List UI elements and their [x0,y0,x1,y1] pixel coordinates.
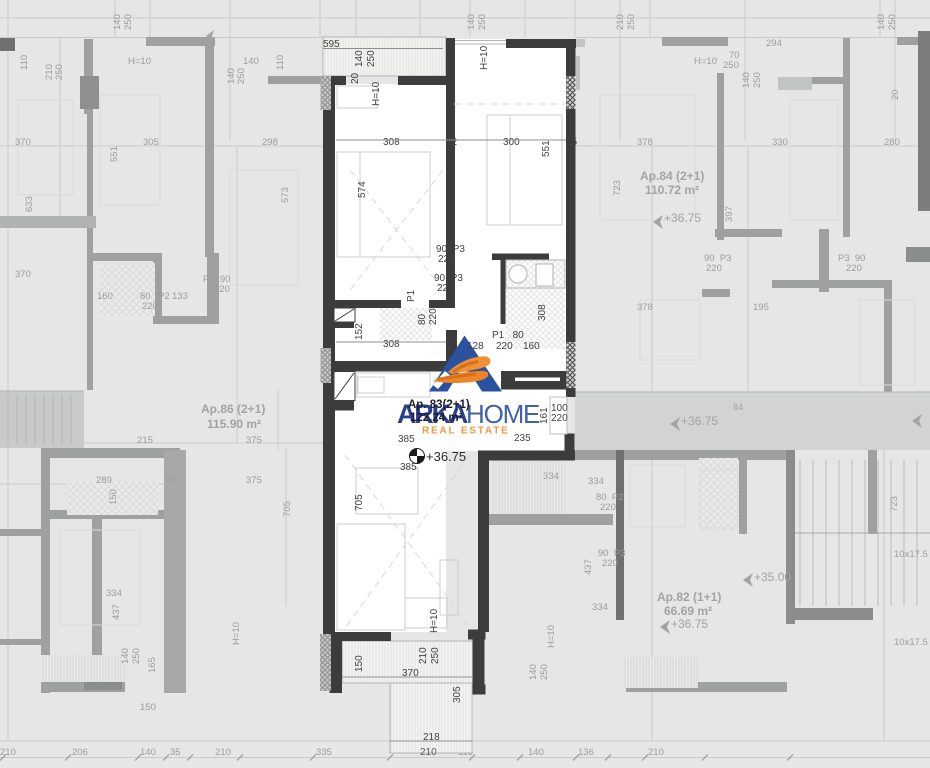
svg-text:220: 220 [602,558,618,569]
svg-text:REAL ESTATE: REAL ESTATE [422,426,510,437]
svg-text:210: 210 [615,14,626,30]
svg-text:250: 250 [887,14,898,30]
svg-text:220: 220 [428,308,439,325]
svg-text:220: 220 [551,413,568,424]
svg-text:334: 334 [106,588,122,599]
svg-text:385: 385 [398,434,415,445]
svg-text:140: 140 [140,747,156,758]
svg-text:551: 551 [109,146,120,162]
svg-text:195: 195 [753,302,769,313]
svg-text:165: 165 [147,657,158,673]
svg-text:140: 140 [528,747,544,758]
svg-text:370: 370 [15,269,31,280]
svg-text:12: 12 [446,137,458,148]
svg-text:378: 378 [637,302,653,313]
svg-text:375: 375 [246,475,262,486]
svg-text:140: 140 [243,56,259,67]
svg-text:H=10: H=10 [128,56,151,67]
svg-text:84: 84 [733,402,743,412]
svg-text:Ap.82 (1+1): Ap.82 (1+1) [657,590,721,604]
svg-text:H=10: H=10 [371,81,382,106]
svg-text:H=10: H=10 [479,45,490,70]
svg-text:160: 160 [523,341,540,352]
svg-text:128: 128 [467,341,484,352]
svg-text:437: 437 [111,604,122,620]
svg-text:397: 397 [724,206,735,222]
svg-text:250: 250 [236,68,247,84]
svg-text:+36.75: +36.75 [664,211,701,225]
svg-text:210: 210 [418,647,429,664]
svg-text:140: 140 [466,14,477,30]
svg-text:551: 551 [541,140,552,157]
svg-text:250: 250 [752,72,763,88]
svg-text:334: 334 [592,602,608,613]
svg-text:25: 25 [566,137,578,148]
svg-text:375: 375 [246,435,262,446]
svg-text:Ap.84 (2+1): Ap.84 (2+1) [640,169,704,183]
svg-text:308: 308 [383,339,400,350]
svg-text:P1: P1 [406,289,417,302]
svg-text:+36.75: +36.75 [671,617,708,631]
svg-text:70: 70 [165,475,176,486]
svg-text:HOME: HOME [466,399,540,429]
svg-text:220: 220 [142,301,158,312]
svg-text:35: 35 [170,747,181,758]
svg-text:20: 20 [890,89,901,100]
svg-text:573: 573 [280,187,291,203]
svg-text:161: 161 [539,407,550,424]
svg-text:+36.75: +36.75 [426,449,466,464]
svg-text:250: 250 [54,64,65,80]
svg-text:140: 140 [741,72,752,88]
svg-text:723: 723 [612,180,623,196]
svg-text:110: 110 [19,55,30,70]
svg-text:250: 250 [123,14,134,30]
svg-text:H=10: H=10 [546,625,557,648]
svg-text:122.24 m²: 122.24 m² [410,412,463,424]
svg-text:437: 437 [583,559,594,575]
svg-text:140: 140 [528,664,539,680]
svg-text:280: 280 [884,137,900,148]
svg-text:H=10: H=10 [694,56,717,67]
svg-text:250: 250 [430,647,441,664]
svg-text:Ap.86 (2+1): Ap.86 (2+1) [201,402,265,416]
svg-text:250: 250 [131,648,142,664]
svg-text:152: 152 [354,323,365,340]
svg-text:220: 220 [214,284,230,295]
svg-text:110.72 m²: 110.72 m² [645,183,699,197]
svg-text:20: 20 [350,72,361,84]
svg-text:206: 206 [72,747,88,758]
svg-text:250: 250 [723,60,739,71]
svg-text:378: 378 [637,137,653,148]
svg-text:705: 705 [282,501,293,517]
svg-text:150: 150 [354,655,365,672]
svg-text:308: 308 [383,137,400,148]
svg-text:335: 335 [316,747,332,758]
svg-text:80: 80 [417,313,428,325]
svg-text:150: 150 [108,489,119,505]
svg-text:140: 140 [112,14,123,30]
svg-text:289: 289 [96,475,112,486]
svg-text:220: 220 [438,254,455,265]
svg-text:210: 210 [215,747,231,758]
svg-text:H=10: H=10 [231,622,242,645]
svg-text:574: 574 [357,181,368,198]
svg-text:334: 334 [588,476,604,487]
svg-text:133: 133 [172,291,188,302]
svg-text:P1 80: P1 80 [492,330,524,341]
svg-text:140: 140 [876,14,887,30]
svg-text:220: 220 [496,341,513,352]
svg-text:Ap. 83(2+1): Ap. 83(2+1) [408,399,470,411]
svg-text:115.90 m²: 115.90 m² [207,417,261,431]
svg-text:385: 385 [400,462,417,473]
svg-text:+35.00: +35.00 [754,570,791,584]
svg-text:136: 136 [578,747,594,758]
svg-text:140: 140 [120,648,131,664]
svg-text:H=10: H=10 [429,608,440,633]
svg-text:10x17.5: 10x17.5 [894,637,928,648]
svg-text:160: 160 [97,291,113,302]
svg-text:298: 298 [262,137,278,148]
svg-text:220: 220 [600,502,616,513]
svg-text:235: 235 [514,433,531,444]
svg-text:334: 334 [543,471,559,482]
svg-text:220: 220 [437,283,454,294]
svg-text:150: 150 [140,702,156,713]
svg-text:66.69 m²: 66.69 m² [664,604,712,618]
svg-text:300: 300 [503,137,520,148]
svg-text:210: 210 [0,747,16,758]
svg-text:250: 250 [539,664,550,680]
svg-text:220: 220 [706,263,722,274]
svg-text:215: 215 [137,435,153,446]
svg-text:305: 305 [452,686,463,703]
svg-text:308: 308 [537,304,548,321]
svg-text:305: 305 [143,137,159,148]
svg-text:633: 633 [24,196,35,212]
svg-text:+36.75: +36.75 [681,414,718,428]
svg-text:294: 294 [766,38,782,49]
svg-text:370: 370 [15,137,31,148]
svg-text:250: 250 [626,14,637,30]
svg-text:250: 250 [366,50,377,67]
svg-text:210: 210 [420,747,437,758]
svg-text:P2: P2 [158,291,170,302]
svg-text:140: 140 [354,50,365,67]
svg-text:330: 330 [772,137,788,148]
svg-text:10x17.5: 10x17.5 [894,549,928,560]
svg-text:110: 110 [275,55,286,70]
svg-text:210: 210 [648,747,664,758]
svg-text:220: 220 [846,263,862,274]
svg-text:723: 723 [889,496,900,512]
svg-text:705: 705 [354,494,365,511]
svg-text:250: 250 [477,14,488,30]
